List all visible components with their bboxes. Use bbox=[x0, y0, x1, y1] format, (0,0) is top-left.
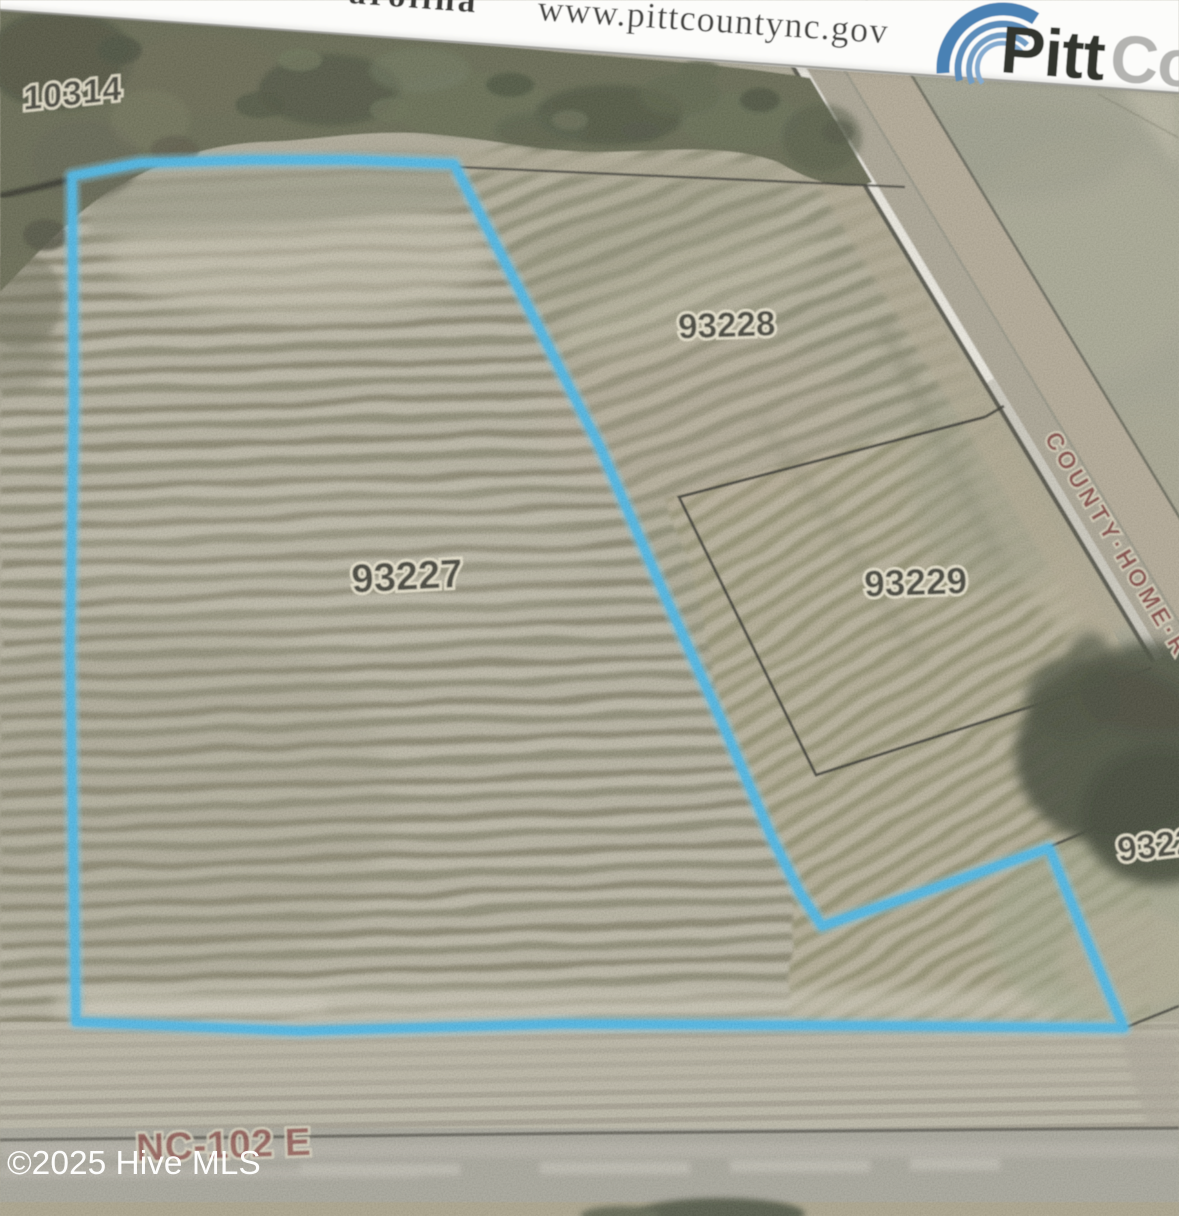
svg-text:Co: Co bbox=[1107, 21, 1179, 103]
svg-text:©2025 Hive MLS: ©2025 Hive MLS bbox=[7, 1145, 261, 1182]
svg-text:Pitt: Pitt bbox=[998, 12, 1108, 95]
